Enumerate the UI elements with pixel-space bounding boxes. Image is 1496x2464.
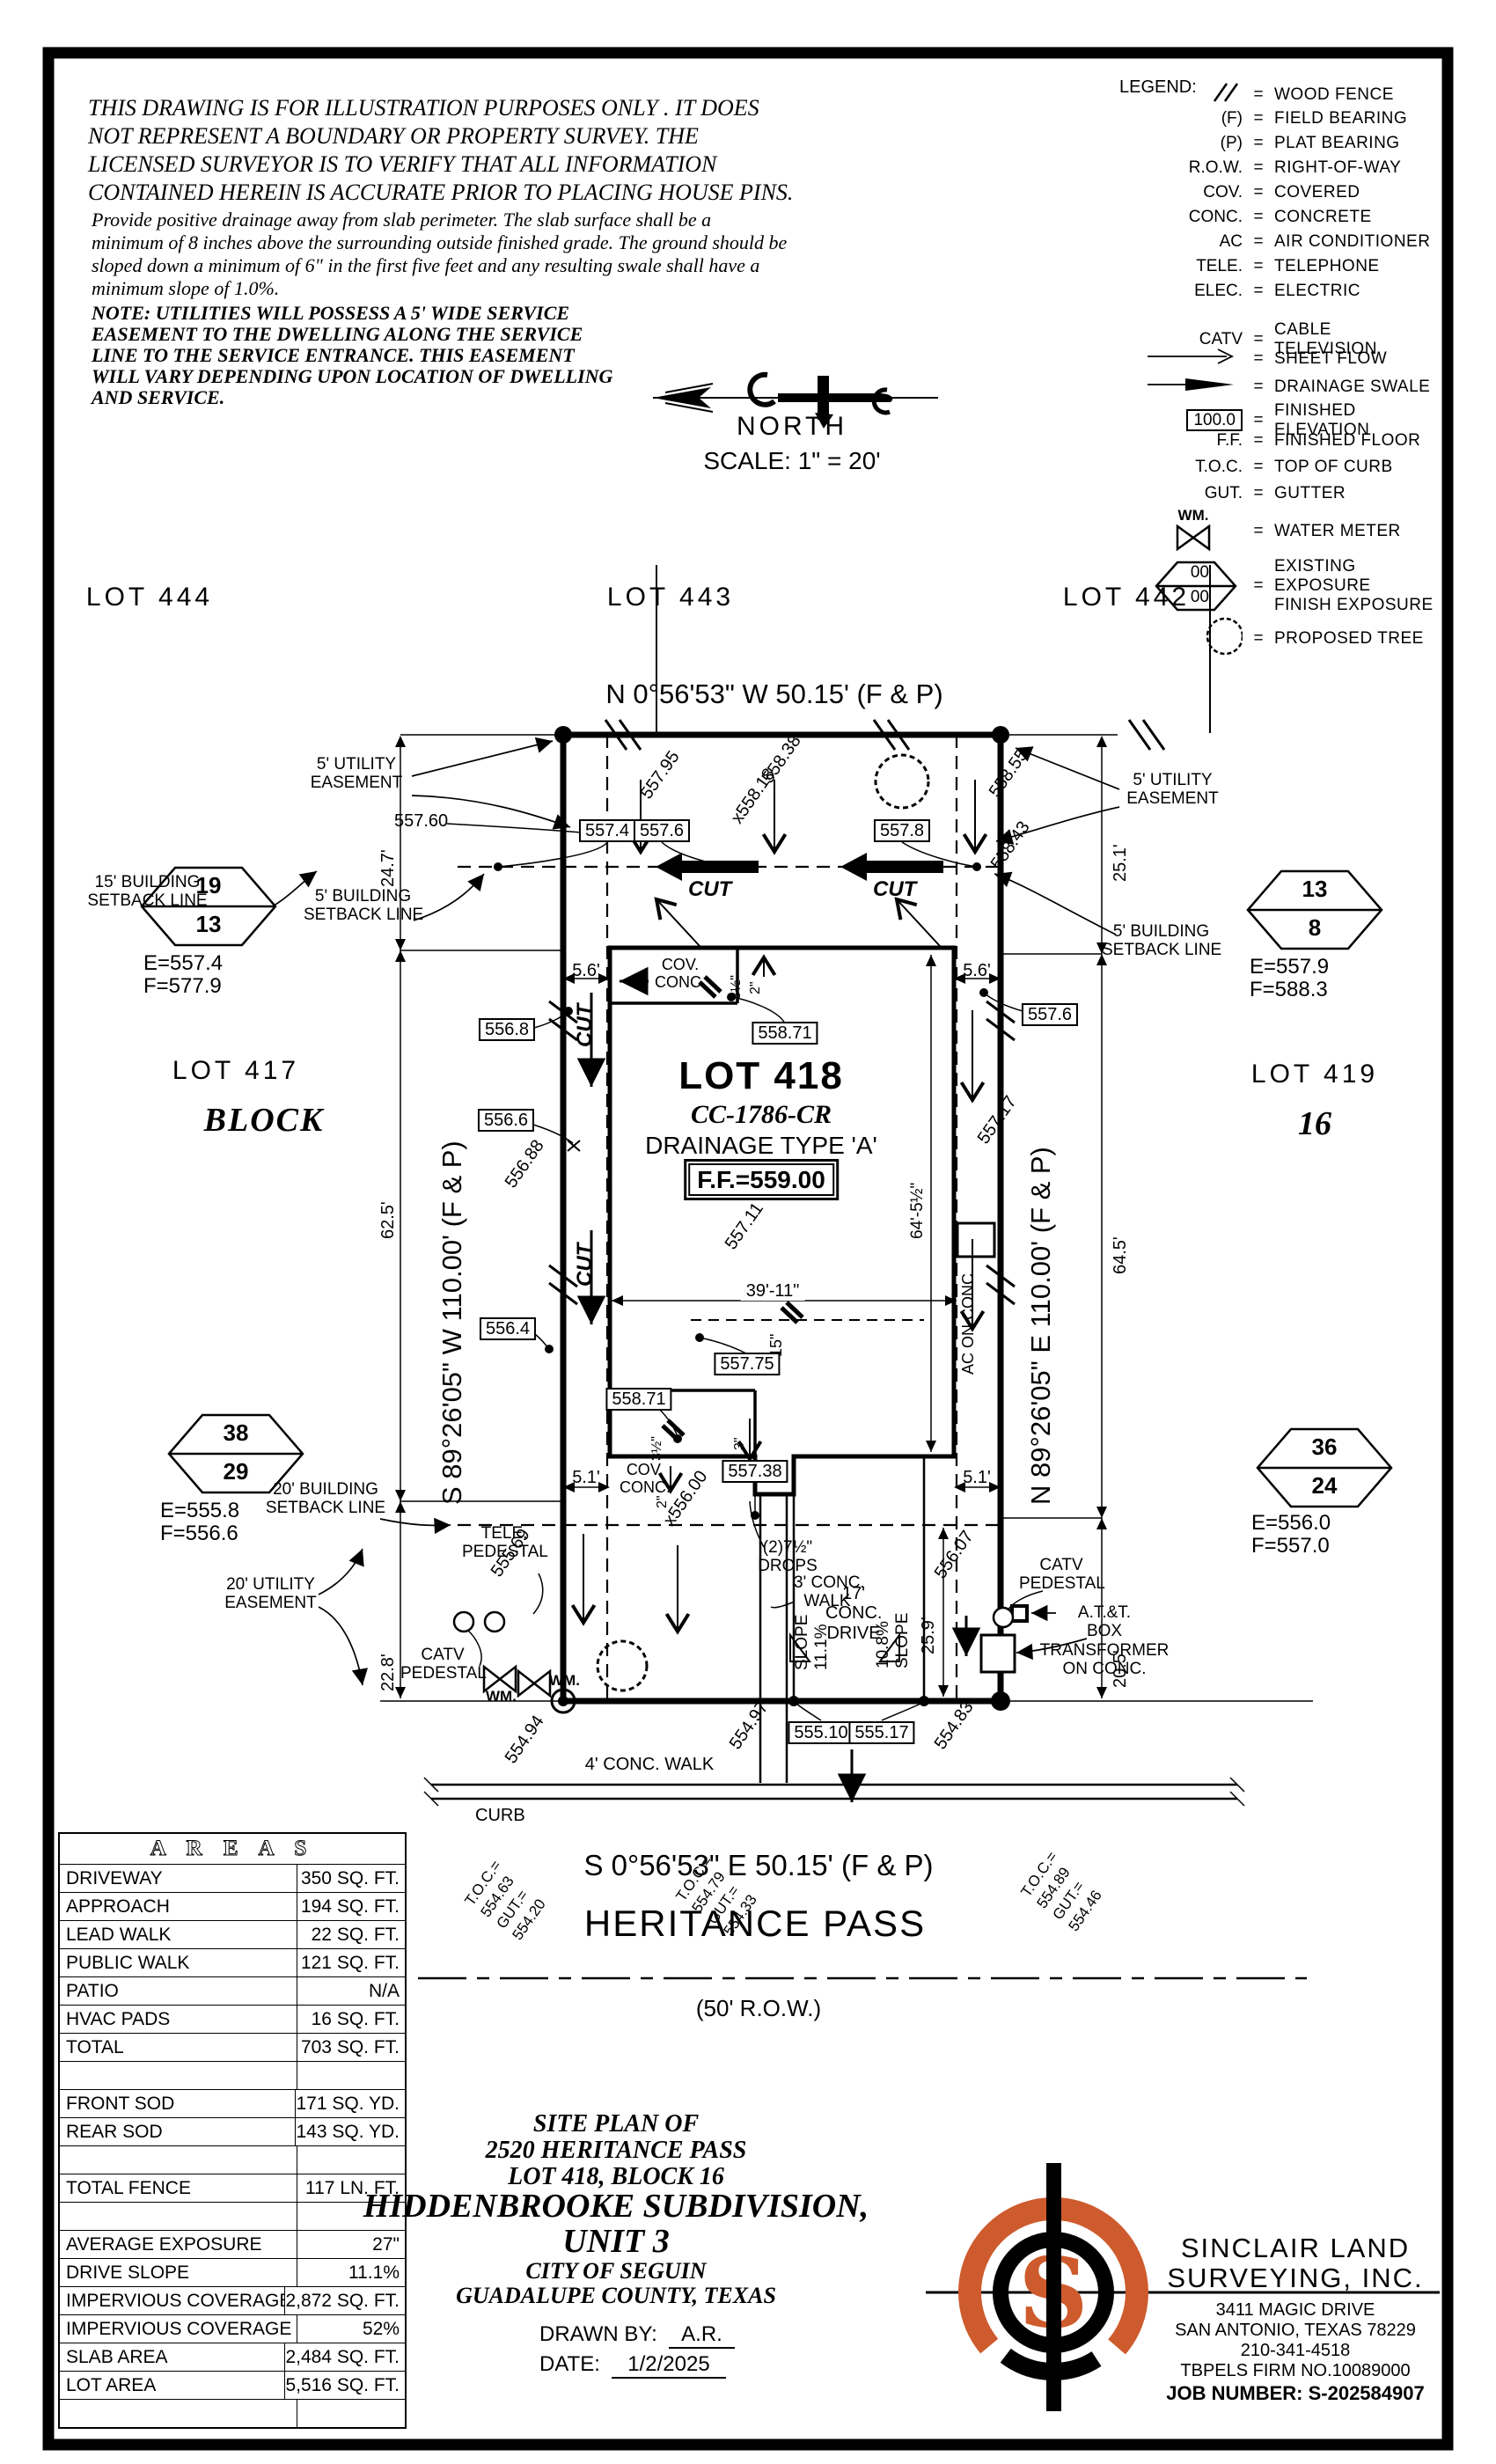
- slope-label: SLOPE: [893, 1613, 912, 1668]
- boxed-elevation: 556.6: [478, 1109, 534, 1132]
- north-label: NORTH: [737, 412, 847, 442]
- slope-label: SLOPE: [793, 1615, 811, 1670]
- exposure-e-value: E=555.8: [160, 1500, 239, 1523]
- building-setback-15-label: 15' BUILDINGSETBACK LINE: [84, 873, 211, 911]
- drainage-swale-icon: [1144, 375, 1243, 400]
- lot-444-label: LOT 444: [86, 583, 213, 612]
- west-bearing: S 89°26'05" W 110.00' (F & P): [437, 1140, 468, 1505]
- transformer-box: [981, 1635, 1015, 1672]
- wm-label: WM.: [549, 1672, 580, 1689]
- legend-row-covered: COV.=COVERED: [1144, 183, 1439, 202]
- exposure-e-value: E=557.4: [143, 952, 223, 976]
- exposure-f-value: F=556.6: [160, 1522, 238, 1546]
- table-row: [60, 2202, 405, 2230]
- firm-number: TBPELS FIRM NO.10089000: [1180, 2361, 1410, 2380]
- scale-label: SCALE: 1" = 20': [703, 447, 880, 474]
- drainage-note-line: sloped down a minimum of 6" in the first…: [92, 255, 759, 277]
- legend-row-gutter: GUT.=GUTTER: [1144, 484, 1439, 503]
- table-row: AVERAGE EXPOSURE27": [60, 2230, 405, 2258]
- drainage-note-line: minimum of 8 inches above the surroundin…: [92, 232, 787, 254]
- boxed-elevation: 556.4: [480, 1317, 536, 1340]
- job-number: JOB NUMBER: S-202584907: [1166, 2383, 1424, 2405]
- drawn-by: DRAWN BY: A.R.: [539, 2323, 735, 2349]
- cov-conc-rear-label: COV.CONC.: [651, 956, 709, 991]
- table-row: REAR SOD143 SQ. YD.: [60, 2117, 405, 2145]
- dim-39-11: 39'-11": [741, 1281, 805, 1301]
- block-label: BLOCK: [204, 1102, 325, 1140]
- table-row: PUBLIC WALK121 SQ. FT.: [60, 1948, 405, 1976]
- boxed-elevation: 557.6: [1022, 1003, 1078, 1026]
- title-line: SITE PLAN OF: [533, 2110, 699, 2138]
- cut-label: CUT: [688, 878, 731, 902]
- table-row: DRIVE SLOPE11.1%: [60, 2258, 405, 2286]
- areas-table: A R E A S DRIVEWAY350 SQ. FT. APPROACH19…: [58, 1832, 407, 2429]
- firm-address-2: SAN ANTONIO, TEXAS 78229: [1175, 2321, 1416, 2340]
- exposure-f-value: F=577.9: [143, 975, 222, 999]
- table-row: LOT AREA5,516 SQ. FT.: [60, 2371, 405, 2399]
- title-county: GUADALUPE COUNTY, TEXAS: [456, 2283, 776, 2308]
- dim-3in: 3": [732, 1437, 748, 1450]
- att-box-label: A.T.&T.BOXTRANSFORMERON CONC.: [1038, 1603, 1170, 1678]
- title-address: 2520 HERITANCE PASS: [486, 2137, 747, 2164]
- disclaimer-line: CONTAINED HEREIN IS ACCURATE PRIOR TO PL…: [88, 180, 793, 205]
- title-lot-block: LOT 418, BLOCK 16: [508, 2163, 724, 2190]
- utility-easement-label-left: 5' UTILITYEASEMENT: [299, 755, 414, 793]
- lot-417-label: LOT 417: [172, 1056, 299, 1086]
- lot-419-label: LOT 419: [1251, 1060, 1378, 1089]
- exposure-e-value: E=556.0: [1251, 1512, 1331, 1536]
- wm-label: WM.: [1144, 507, 1243, 524]
- exposure-finish: 24: [1312, 1473, 1338, 1499]
- exposure-f-value: F=588.3: [1250, 979, 1328, 1002]
- exposure-existing: 19: [196, 873, 222, 898]
- exposure-existing: 38: [224, 1420, 249, 1446]
- drawn-by-value: A.R.: [669, 2323, 735, 2349]
- legend-row-row: R.O.W.=RIGHT-OF-WAY: [1144, 158, 1439, 178]
- table-row: FRONT SOD171 SQ. YD.: [60, 2089, 405, 2117]
- drops-label: (2)7½"DROPS: [752, 1538, 823, 1576]
- boxed-elevation: 555.10: [788, 1721, 854, 1744]
- boxed-elevation: 556.8: [479, 1018, 535, 1041]
- title-subdivision: HIDDENBROOKE SUBDIVISION,: [363, 2188, 869, 2226]
- lot-442-label: LOT 442: [1063, 583, 1190, 612]
- exposure-finish: 8: [1309, 915, 1321, 941]
- legend-row-toc: T.O.C.=TOP OF CURB: [1144, 458, 1439, 477]
- lot-443-label: LOT 443: [607, 583, 734, 612]
- drainage-type: DRAINAGE TYPE 'A': [645, 1132, 877, 1159]
- table-row: SLAB AREA2,484 SQ. FT.: [60, 2343, 405, 2371]
- water-meter-icon: [1144, 524, 1243, 551]
- slope-10-8: 10.8%: [874, 1621, 892, 1668]
- boxed-elevation: 557.75: [714, 1353, 780, 1375]
- table-row: [60, 2145, 405, 2174]
- exposure-existing: 36: [1312, 1434, 1338, 1460]
- table-row: APPROACH194 SQ. FT.: [60, 1892, 405, 1920]
- boxed-elevation: 555.17: [848, 1721, 914, 1744]
- finished-floor-value: F.F.=559.00: [688, 1163, 834, 1196]
- utility-note-line: EASEMENT TO THE DWELLING ALONG THE SERVI…: [92, 324, 583, 346]
- table-row: DRIVEWAY350 SQ. FT.: [60, 1864, 405, 1892]
- sheet-flow-icon: [1144, 347, 1243, 371]
- firm-address-1: 3411 MAGIC DRIVE: [1216, 2300, 1375, 2320]
- exposure-finish: 29: [224, 1459, 249, 1485]
- catv-pedestal-label-right: CATVPEDESTAL: [1019, 1556, 1104, 1594]
- table-row: IMPERVIOUS COVERAGE %52%: [60, 2314, 405, 2343]
- utility-note-line: LINE TO THE SERVICE ENTRANCE. THIS EASEM…: [92, 345, 575, 367]
- date-value: 1/2/2025: [612, 2353, 725, 2379]
- utility-easement-20-label: 20' UTILITYEASEMENT: [216, 1575, 326, 1613]
- legend-row-ac: AC=AIR CONDITIONER: [1144, 232, 1439, 252]
- legend-row-electric: ELEC.=ELECTRIC: [1144, 282, 1439, 301]
- proposed-tree-icon: [1144, 615, 1243, 663]
- catv-pedestal-label-left: CATVPEDESTAL: [400, 1646, 485, 1683]
- dim-64-5-5: 64'-5½": [908, 1183, 927, 1239]
- site-plan-sheet: S THIS DRAWING IS FOR ILLUSTRATION PURPO…: [0, 0, 1496, 2464]
- table-row: LEAD WALK22 SQ. FT.: [60, 1920, 405, 1948]
- utility-note-line: AND SERVICE.: [92, 387, 224, 409]
- utility-easement-label-right: 5' UTILITYEASEMENT: [1118, 771, 1228, 809]
- table-row: IMPERVIOUS COVERAGE2,872 SQ. FT.: [60, 2286, 405, 2314]
- legend-row-wood-fence: =WOOD FENCE: [1144, 81, 1439, 109]
- ac-on-conc-label: AC ON CONC.: [959, 1269, 977, 1375]
- att-box: [1012, 1606, 1027, 1621]
- spot-elevation: 557.60: [394, 811, 448, 831]
- boxed-elevation: 557.38: [722, 1460, 788, 1483]
- legend-row-finished-floor: F.F.=FINISHED FLOOR: [1144, 431, 1439, 451]
- dim-25-1: 25.1': [1111, 844, 1130, 882]
- block-16-label: 16: [1298, 1105, 1331, 1143]
- lot-418-label: LOT 418: [678, 1054, 844, 1097]
- legend-row-water-meter: WM.=WATER METER: [1144, 509, 1439, 554]
- table-row: HVAC PADS16 SQ. FT.: [60, 2005, 405, 2033]
- wood-fence-icon: [1144, 81, 1243, 109]
- boxed-elevation: 558.71: [605, 1388, 671, 1411]
- table-row: [60, 2399, 405, 2427]
- cut-label: CUT: [873, 878, 916, 902]
- boxed-elevation: 558.71: [752, 1022, 818, 1045]
- tele-pedestal-label: TELE.PEDESTAL: [462, 1524, 546, 1562]
- dim-5-1: 5.1': [572, 1468, 600, 1487]
- dim-5-1: 5.1': [963, 1468, 991, 1487]
- street-name: HERITANCE PASS: [584, 1903, 926, 1944]
- public-walk-label: 4' CONC. WALK: [582, 1755, 717, 1774]
- dim-25-9: 25.9': [919, 1617, 938, 1654]
- table-row: [60, 2061, 405, 2089]
- boxed-elevation: 557.4: [579, 819, 635, 842]
- table-row: TOTAL703 SQ. FT.: [60, 2033, 405, 2061]
- date: DATE: 1/2/2025: [539, 2353, 726, 2379]
- title-unit: UNIT 3: [562, 2223, 669, 2261]
- exposure-finish: 13: [196, 912, 222, 937]
- utility-note-line: WILL VARY DEPENDING UPON LOCATION OF DWE…: [92, 366, 612, 388]
- east-bearing: N 89°26'05" E 110.00' (F & P): [1026, 1147, 1057, 1505]
- walk-end-ticks: [424, 1778, 1244, 1806]
- building-setback-5-left-label: 5' BUILDINGSETBACK LINE: [304, 887, 422, 925]
- legend-row-telephone: TELE.=TELEPHONE: [1144, 257, 1439, 276]
- cut-label: CUT: [574, 1004, 598, 1047]
- drainage-note-line: minimum slope of 1.0%.: [92, 278, 279, 300]
- legend-row-concrete: CONC.=CONCRETE: [1144, 208, 1439, 227]
- south-bearing: S 0°56'53" E 50.15' (F & P): [583, 1850, 933, 1882]
- dim-5-6: 5.6': [572, 961, 600, 980]
- x-marks: [568, 829, 612, 1151]
- disclaimer-line: NOT REPRESENT A BOUNDARY OR PROPERTY SUR…: [88, 123, 699, 149]
- dim-5-6: 5.6': [963, 961, 991, 980]
- building-setback-20-label: 20' BUILDINGSETBACK LINE: [264, 1480, 387, 1518]
- title-city: CITY OF SEGUIN: [525, 2258, 706, 2284]
- finished-elevation-box: 100.0: [1186, 409, 1243, 431]
- exposure-existing: 13: [1302, 876, 1328, 902]
- curb-label: CURB: [475, 1806, 525, 1825]
- dim-3-5in: 3½": [729, 975, 744, 1000]
- boxed-elevation: 557.8: [874, 819, 930, 842]
- building-setback-5-right-label: 5' BUILDINGSETBACK LINE: [1102, 922, 1221, 960]
- firm-phone: 210-341-4518: [1241, 2341, 1351, 2360]
- legend-row-drainage-swale: =DRAINAGE SWALE: [1144, 375, 1439, 400]
- cut-label: CUT: [574, 1243, 598, 1287]
- wm-label: WM.: [486, 1688, 517, 1705]
- dim-2in: 2": [748, 981, 764, 994]
- legend-row-tree: =PROPOSED TREE: [1144, 618, 1439, 660]
- table-row: TOTAL FENCE117 LN. FT.: [60, 2174, 405, 2202]
- legend-row-plat-bearing: (P)=PLAT BEARING: [1144, 134, 1439, 153]
- dim-62-5: 62.5': [378, 1201, 398, 1239]
- exposure-f-value: F=557.0: [1251, 1535, 1330, 1558]
- north-bearing: N 0°56'53" W 50.15' (F & P): [605, 679, 942, 710]
- cov-conc-front-label: COV.CONC.: [616, 1461, 674, 1496]
- exposure-e-value: E=557.9: [1250, 956, 1329, 979]
- areas-table-title: A R E A S: [60, 1834, 405, 1864]
- firm-name-1: SINCLAIR LAND: [1181, 2233, 1410, 2264]
- cc-number: CC-1786-CR: [691, 1100, 832, 1130]
- drainage-note-line: Provide positive drainage away from slab…: [92, 209, 711, 231]
- legend-row-field-bearing: (F)=FIELD BEARING: [1144, 109, 1439, 128]
- dim-24-7: 24.7': [378, 849, 398, 887]
- disclaimer-line: THIS DRAWING IS FOR ILLUSTRATION PURPOSE…: [88, 95, 759, 121]
- firm-name-2: SURVEYING, INC.: [1167, 2263, 1423, 2294]
- ac-unit: [957, 1223, 994, 1257]
- utility-note-line: NOTE: UTILITIES WILL POSSESS A 5' WIDE S…: [92, 303, 569, 325]
- dim-64-5: 64.5': [1111, 1236, 1130, 1274]
- table-row: PATION/A: [60, 1976, 405, 2005]
- street-row: (50' R.O.W.): [696, 1996, 821, 2021]
- public-walk: [431, 1785, 1237, 1799]
- dim-3-5in: 3½": [649, 1436, 665, 1461]
- legend-row-sheet-flow: =SHEET FLOW: [1144, 347, 1439, 371]
- boxed-elevation: 557.6: [634, 819, 690, 842]
- disclaimer-line: LICENSED SURVEYOR IS TO VERIFY THAT ALL …: [88, 151, 716, 177]
- dim-22-8: 22.8': [378, 1654, 398, 1691]
